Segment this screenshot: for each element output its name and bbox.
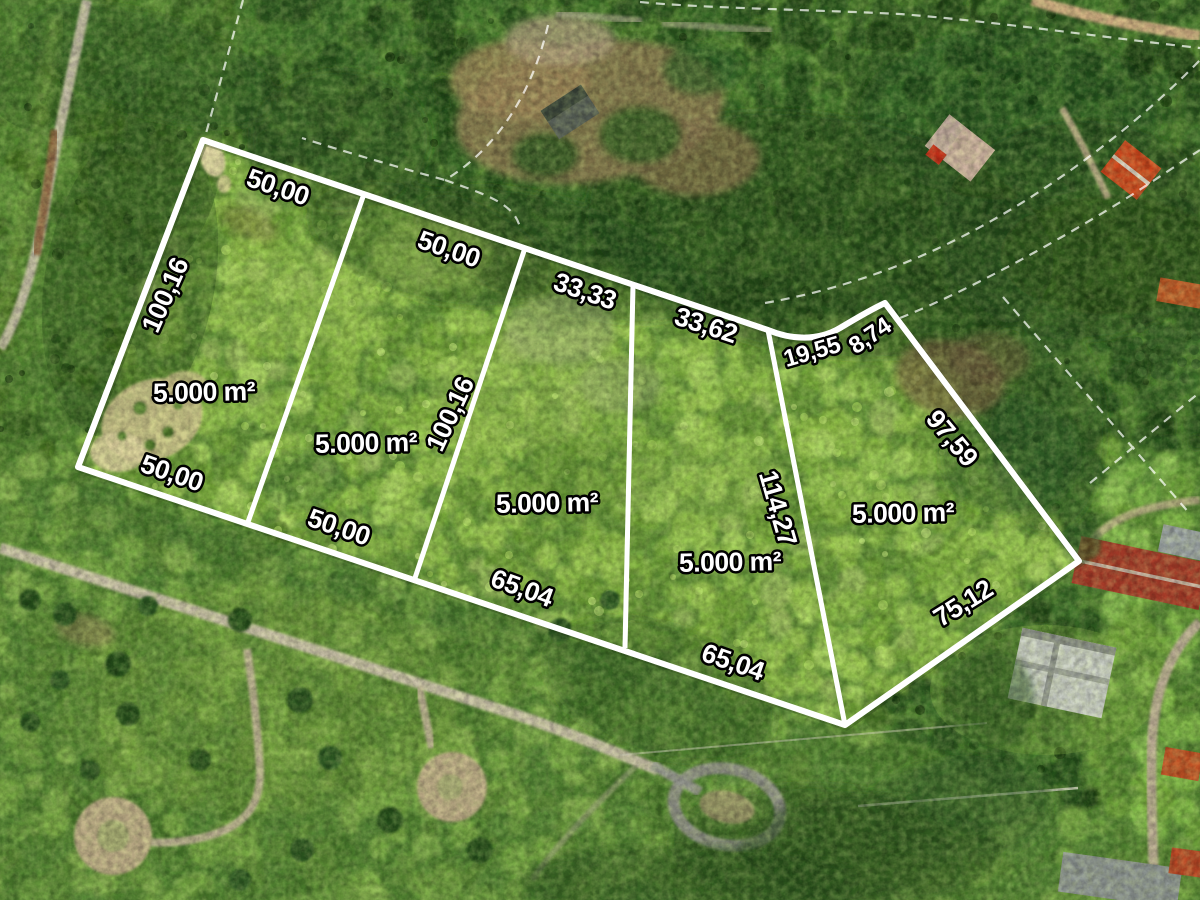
svg-text:5.000 m²: 5.000 m² [679, 546, 782, 578]
svg-text:5.000 m²: 5.000 m² [315, 427, 418, 459]
svg-text:5.000 m²: 5.000 m² [852, 497, 955, 529]
svg-text:5.000 m²: 5.000 m² [153, 376, 256, 408]
svg-text:5.000 m²: 5.000 m² [496, 487, 599, 519]
